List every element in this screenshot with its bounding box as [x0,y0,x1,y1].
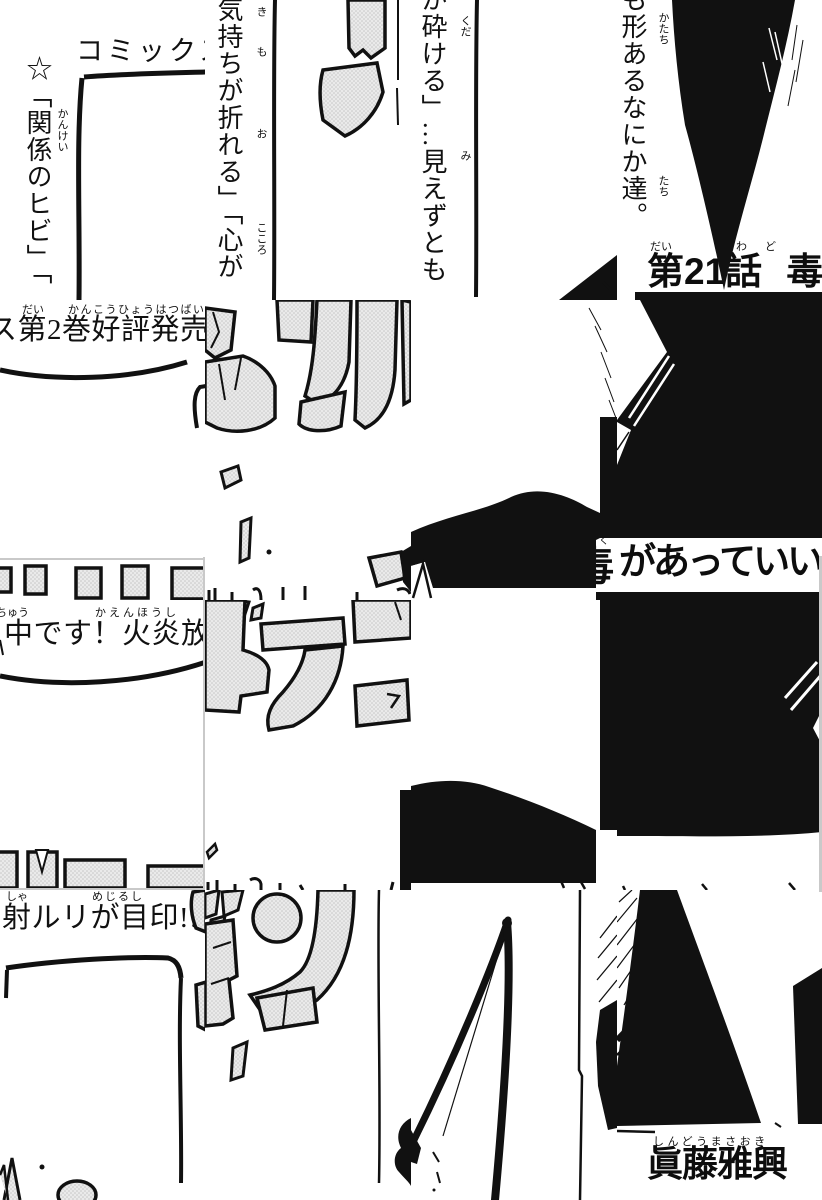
tile-r2c2 [205,300,411,600]
shoulder-curve-artwork [411,600,617,890]
tile-r2c4: があっていい [617,300,822,600]
hair-silhouette-artwork [617,0,822,300]
tile-r1c1: コミックス ☆「関係のヒビ」「 かんけい [0,0,205,300]
uniform-silhouette-artwork [617,300,822,600]
shoulder-silhouette-artwork [411,300,617,600]
tile-r4c4: しんどうまさおき 眞藤雅興 [617,890,822,1200]
speech-bubble-and-logo-bottoms-artwork [0,600,205,890]
tile-r3c2 [205,600,411,890]
tile-r3c4 [617,600,822,890]
tile-r3c3 [411,600,617,890]
tile-r4c3 [411,890,617,1200]
tile-r1c2: 気持ちが折れる」「心が き も お こころ [205,0,411,300]
manga-page-viewer: コミックス ☆「関係のヒビ」「 かんけい 気持ちが折れる」「心が き も お こ… [0,0,822,1200]
shattered-logo-letters-artwork [205,300,411,600]
fang-outline-artwork [411,890,617,1200]
tile-r4c1: しゃ めじるし 射ルリが目印!! [0,890,205,1200]
tile-r2c3: 毒 く [411,300,617,600]
tile-r1c3: が砕ける」…見えずとも くだ み [411,0,617,300]
tile-r4c2 [205,890,411,1200]
black-mass-artwork [617,600,822,890]
speech-bubble-and-logo-tops-artwork [0,300,205,600]
tile-r3c1: ちゅう かえんほうし 中です！火炎放 [0,600,205,890]
furigana-ku: く [599,537,609,547]
tile-r1c4: も形あるなにか達。 かたち たち だい わ ど 第21話 毒 [617,0,822,300]
panel-border-artwork [411,0,617,300]
ad-panel-frame-artwork [0,890,205,1200]
tile-seam-horizontal-left [0,888,205,890]
tile-r2c1: だい かんこうひょうはつばい ス第2巻好評発売 [0,300,205,600]
shattered-logo-letters-artwork-2 [205,600,411,890]
tile-seam-vertical-left [203,557,205,890]
ad-frame-border-artwork [0,0,205,300]
shattered-logo-fragment-artwork [205,0,411,300]
shattered-logo-letters-artwork-3 [205,890,411,1200]
hair-triangle-artwork [617,890,822,1200]
tile-seam-horizontal-top [0,558,205,560]
